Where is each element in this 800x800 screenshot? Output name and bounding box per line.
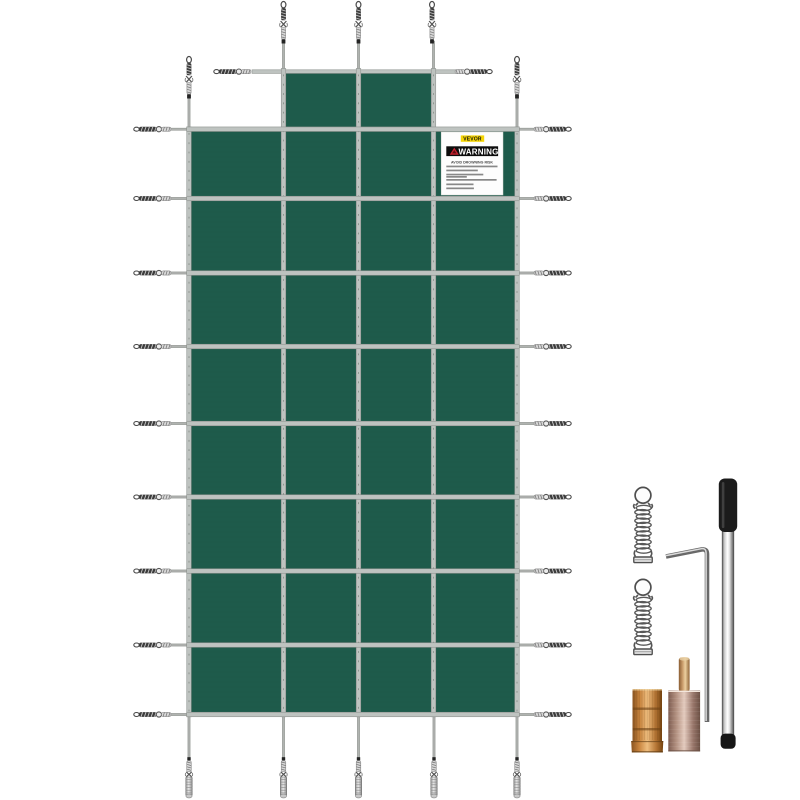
svg-text:WARNING: WARNING	[458, 147, 498, 156]
svg-text:AVOID DROWNING RISK: AVOID DROWNING RISK	[451, 160, 493, 164]
svg-text:VEVOR: VEVOR	[463, 136, 482, 142]
